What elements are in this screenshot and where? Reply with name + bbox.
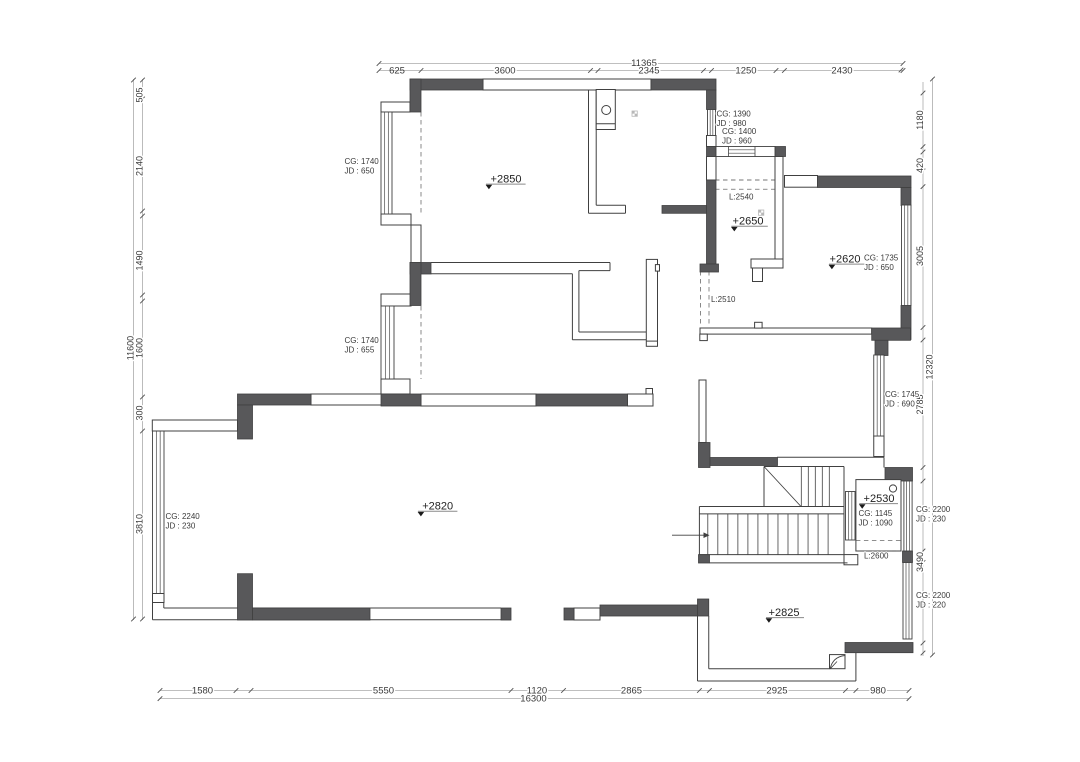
svg-text:3810: 3810 [135,514,145,534]
svg-text:3600: 3600 [494,66,515,77]
svg-text:CG: 1735: CG: 1735 [864,254,899,263]
svg-text:2865: 2865 [621,685,642,696]
svg-text:CG: 1145: CG: 1145 [859,509,893,518]
svg-text:2430: 2430 [831,66,852,77]
svg-text:JD : 220: JD : 220 [916,601,946,610]
svg-text:625: 625 [389,66,405,77]
svg-text:11600: 11600 [126,336,136,360]
svg-text:CG: 2240: CG: 2240 [166,512,201,521]
svg-text:JD : 230: JD : 230 [166,522,196,531]
svg-text:5550: 5550 [373,685,394,696]
svg-text:2925: 2925 [766,685,787,696]
svg-text:1600: 1600 [135,338,145,358]
svg-text:L:2600: L:2600 [864,552,889,561]
svg-text:300: 300 [135,405,145,420]
svg-text:CG: 1740: CG: 1740 [345,336,380,345]
svg-text:JD : 960: JD : 960 [722,137,752,146]
svg-text:12320: 12320 [925,354,935,379]
svg-text:JD : 650: JD : 650 [864,263,894,272]
svg-text:3490: 3490 [915,552,925,572]
svg-text:16300: 16300 [520,694,546,705]
svg-text:420: 420 [915,158,925,173]
svg-text:CG: 1390: CG: 1390 [717,110,752,119]
svg-text:2140: 2140 [135,156,145,176]
svg-text:L:2540: L:2540 [729,193,754,202]
svg-text:CG: 2200: CG: 2200 [916,505,951,514]
svg-text:1580: 1580 [192,685,213,696]
svg-text:L:2510: L:2510 [711,295,736,304]
svg-text:JD : 690: JD : 690 [885,400,915,409]
svg-text:1250: 1250 [735,66,756,77]
svg-text:3005: 3005 [915,246,925,266]
svg-text:980: 980 [870,685,886,696]
svg-text:505: 505 [135,87,145,102]
svg-text:JD : 1090: JD : 1090 [859,519,894,528]
svg-text:JD : 655: JD : 655 [345,346,375,355]
svg-text:CG: 1740: CG: 1740 [345,157,380,166]
svg-text:JD : 650: JD : 650 [345,167,375,176]
svg-text:CG: 2200: CG: 2200 [916,591,951,600]
svg-text:CG: 1400: CG: 1400 [722,127,757,136]
svg-text:JD : 230: JD : 230 [916,515,946,524]
svg-text:CG: 1745: CG: 1745 [885,390,920,399]
svg-text:1490: 1490 [135,250,145,270]
svg-text:1180: 1180 [915,110,925,129]
svg-text:2345: 2345 [638,66,659,77]
